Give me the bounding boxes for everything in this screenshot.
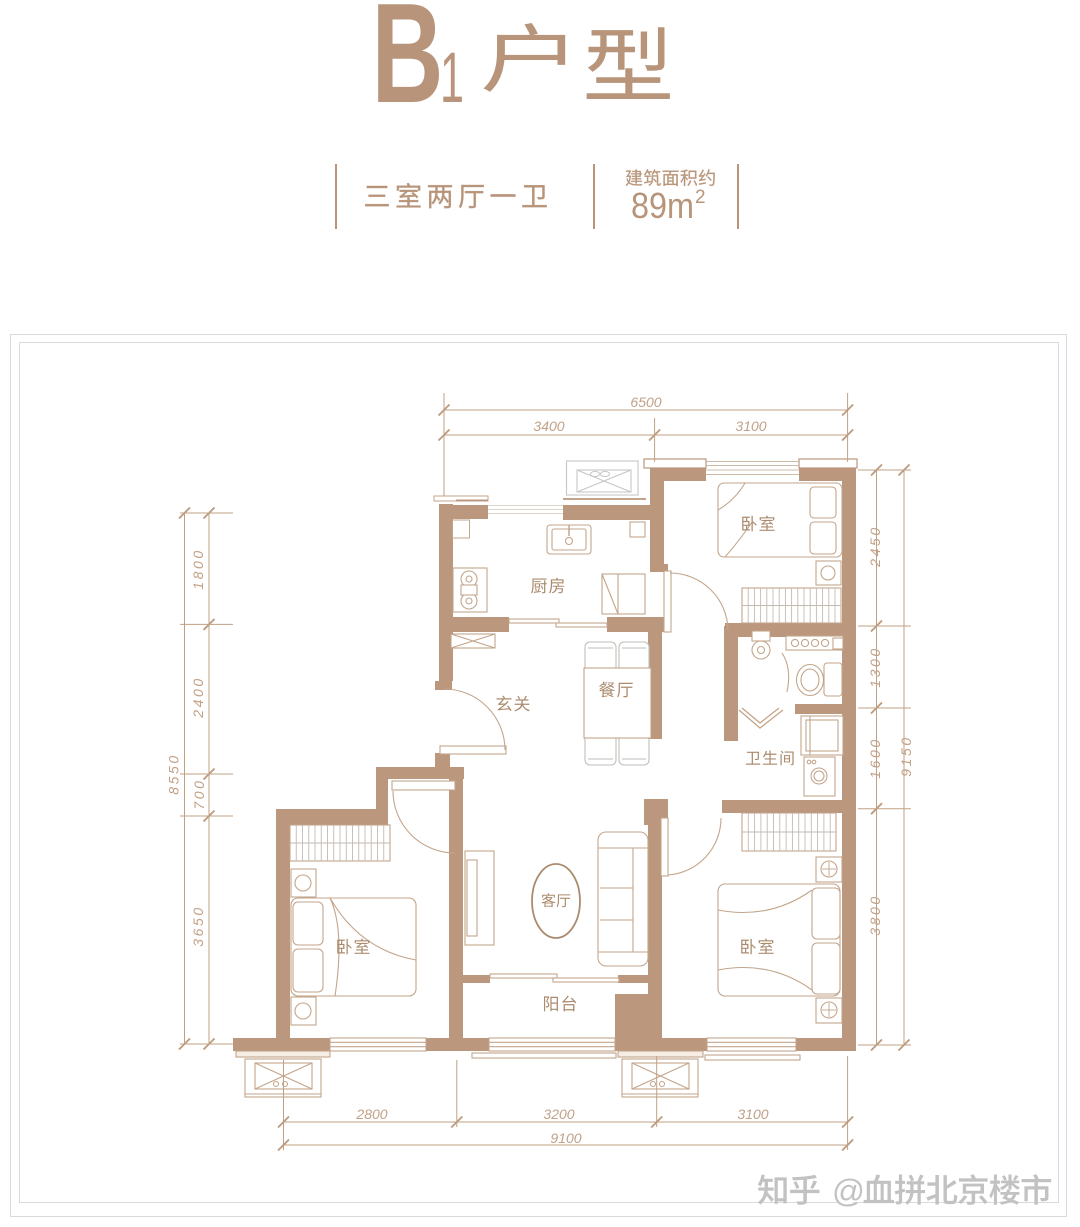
svg-text:3650: 3650 [190,905,206,947]
svg-text:8550: 8550 [166,753,182,795]
svg-text:1800: 1800 [190,548,206,590]
svg-text:6500: 6500 [630,394,661,410]
svg-text:9100: 9100 [550,1130,581,1146]
svg-text:2450: 2450 [867,525,883,568]
svg-text:@: @ [832,1173,865,1209]
svg-text:89m: 89m [631,185,694,226]
svg-text:2: 2 [695,187,706,208]
svg-text:1300: 1300 [867,646,883,688]
svg-text:3100: 3100 [735,418,766,434]
svg-text:1600: 1600 [867,737,883,779]
svg-text:B: B [372,0,444,133]
svg-text:3800: 3800 [867,894,883,936]
svg-text:3400: 3400 [533,418,564,434]
svg-text:3200: 3200 [543,1106,574,1122]
svg-text:1: 1 [440,39,464,118]
svg-text:2800: 2800 [355,1106,387,1122]
svg-text:3100: 3100 [737,1106,768,1122]
svg-text:9150: 9150 [898,735,914,777]
svg-text:2400: 2400 [190,676,206,719]
svg-text:700: 700 [191,778,207,809]
